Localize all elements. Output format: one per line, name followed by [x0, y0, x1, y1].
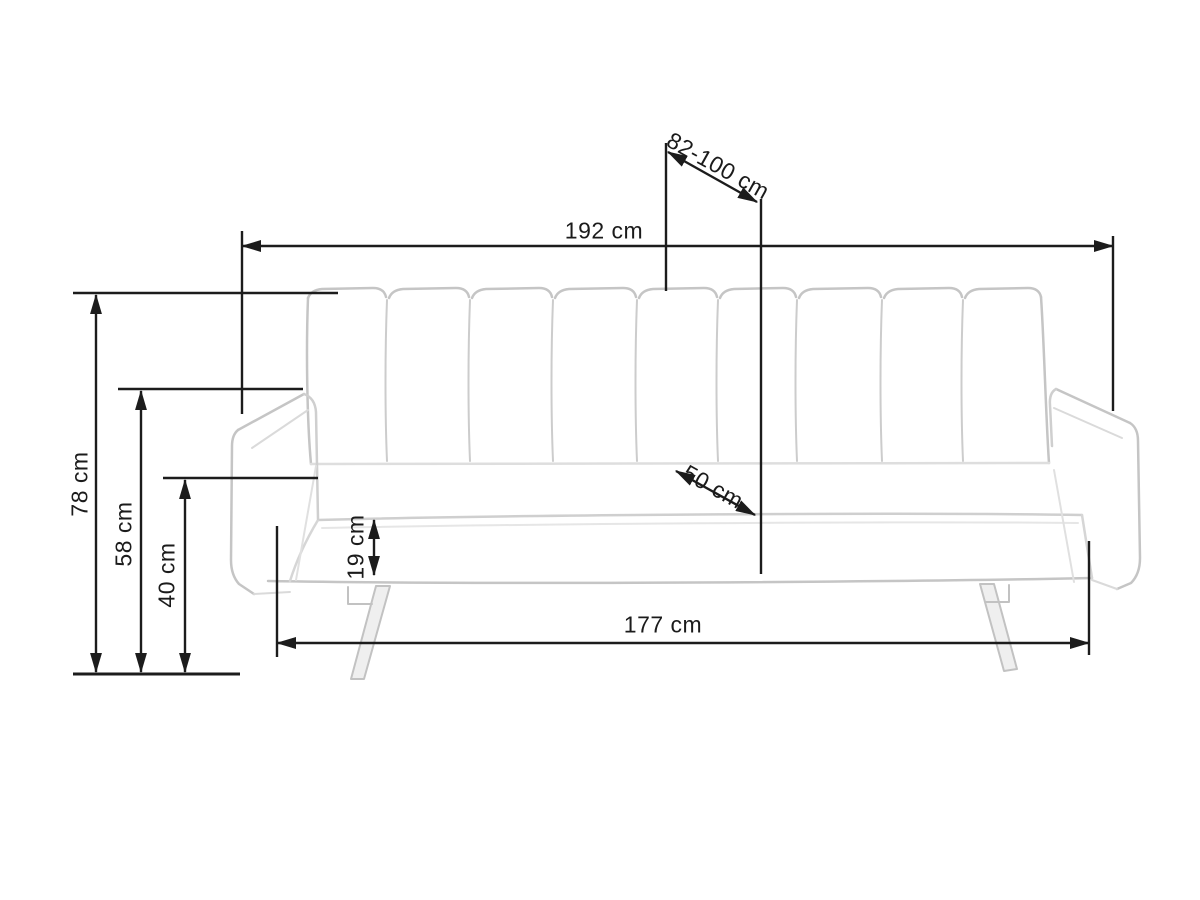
sofa-right-leg [980, 584, 1017, 671]
sofa-technical-drawing [0, 0, 1200, 900]
sofa-left-armrest [231, 394, 318, 594]
dim-label-total-height: 78 cm [67, 451, 94, 516]
sofa-backrest-top [308, 288, 1041, 298]
sofa-right-armrest [1050, 389, 1140, 589]
dim-label-armrest-height: 58 cm [111, 501, 138, 566]
sofa-base-bottom [268, 578, 1092, 583]
dim-label-cushion-thickness: 19 cm [343, 514, 370, 579]
dim-overall-width [242, 231, 1113, 414]
sofa-seat-right-end [1082, 515, 1092, 578]
sofa-backrest-bottom [311, 463, 1049, 464]
sofa-backrest-channels [386, 300, 964, 461]
sofa-seat-front-seam [318, 514, 1082, 520]
sofa-backrest-right-edge [1041, 297, 1049, 463]
dim-total-height [73, 293, 338, 672]
dim-label-overall-width: 192 cm [565, 218, 643, 245]
dimension-diagram: 192 cm 82-100 cm 78 cm 58 cm 40 cm 19 cm… [0, 0, 1200, 900]
dim-label-seat-height: 40 cm [154, 542, 181, 607]
sofa-left-leg [351, 586, 390, 679]
sofa-seat-front-seam-2 [322, 522, 1078, 528]
sofa-left-leg-bracket [348, 587, 372, 604]
sofa-backrest-left-edge [307, 298, 311, 464]
dim-label-base-width: 177 cm [624, 612, 702, 639]
